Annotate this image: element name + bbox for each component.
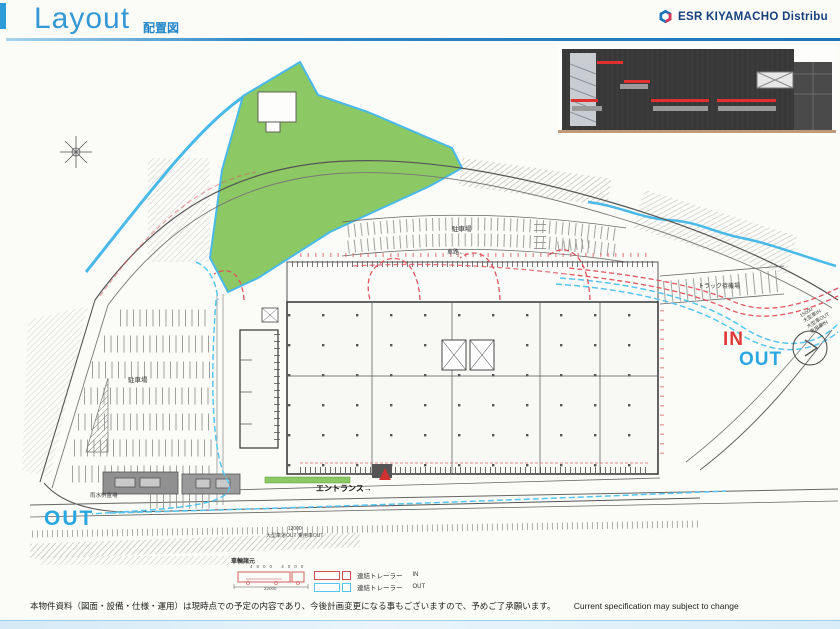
label-out-right: OUT xyxy=(739,349,782,371)
rotary-arrow-icon xyxy=(793,331,827,365)
annex-building xyxy=(240,330,278,448)
corner-accent xyxy=(0,3,6,29)
label-rainwater: 雨水桝置場 xyxy=(90,493,118,499)
bottom-strip xyxy=(0,620,840,629)
elevation-drawing xyxy=(558,44,836,136)
top-parking xyxy=(342,215,626,262)
label-truck-waiting: トラック待機場 xyxy=(698,284,740,291)
compass-icon xyxy=(60,136,92,168)
trailer-in-swatch xyxy=(314,571,351,580)
page-title: Layout xyxy=(34,2,130,36)
label-bottom-dimensions: 12000 大型車道OUT 乗用車OUT xyxy=(266,526,323,539)
utility-buildings xyxy=(103,472,240,494)
legend-item-dir: OUT xyxy=(413,584,426,590)
trailer-out-swatch xyxy=(314,583,351,592)
legend-item-out: 連結トレーラー OUT xyxy=(314,582,425,592)
brand: ESR KIYAMACHO Distribu xyxy=(658,9,840,24)
footer-disclaimer: 本物件資料（図面・設備・仕様・運用）は現時点での予定の内容であり、今後計画変更に… xyxy=(30,600,830,612)
label-parking-left: 駐車場 xyxy=(128,377,148,384)
label-entrance: エントランス→ xyxy=(316,483,372,494)
green-area xyxy=(210,62,462,292)
building-elevation-inset xyxy=(558,44,836,136)
page-subtitle: 配置図 xyxy=(143,19,179,36)
footer-note-jp: 本物件資料（図面・設備・仕様・運用）は現時点での予定の内容であり、今後計画変更に… xyxy=(30,601,555,611)
esr-logo-icon xyxy=(658,9,673,24)
legend-item-dir: IN xyxy=(413,572,419,578)
layout-page: Layout 配置図 ESR KIYAMACHO Distribu 駐車場 駐車… xyxy=(0,0,840,629)
legend-item-label: 連結トレーラー xyxy=(357,582,403,592)
legend-bottom-dimension: 22000 xyxy=(264,586,277,591)
header-rule xyxy=(6,38,840,41)
legend-item-in: 連結トレーラー IN xyxy=(314,570,419,580)
label-out-bottom: OUT xyxy=(44,507,94,531)
legend-item-label: 連結トレーラー xyxy=(357,570,403,580)
footer-note-en: Current specification may subject to cha… xyxy=(574,601,739,611)
label-lane: 車路← xyxy=(447,250,465,257)
label-in: IN xyxy=(723,329,744,351)
main-building xyxy=(262,255,662,474)
label-parking-top: 駐車場 xyxy=(452,226,472,233)
brand-name: ESR KIYAMACHO Distribu xyxy=(678,11,828,23)
